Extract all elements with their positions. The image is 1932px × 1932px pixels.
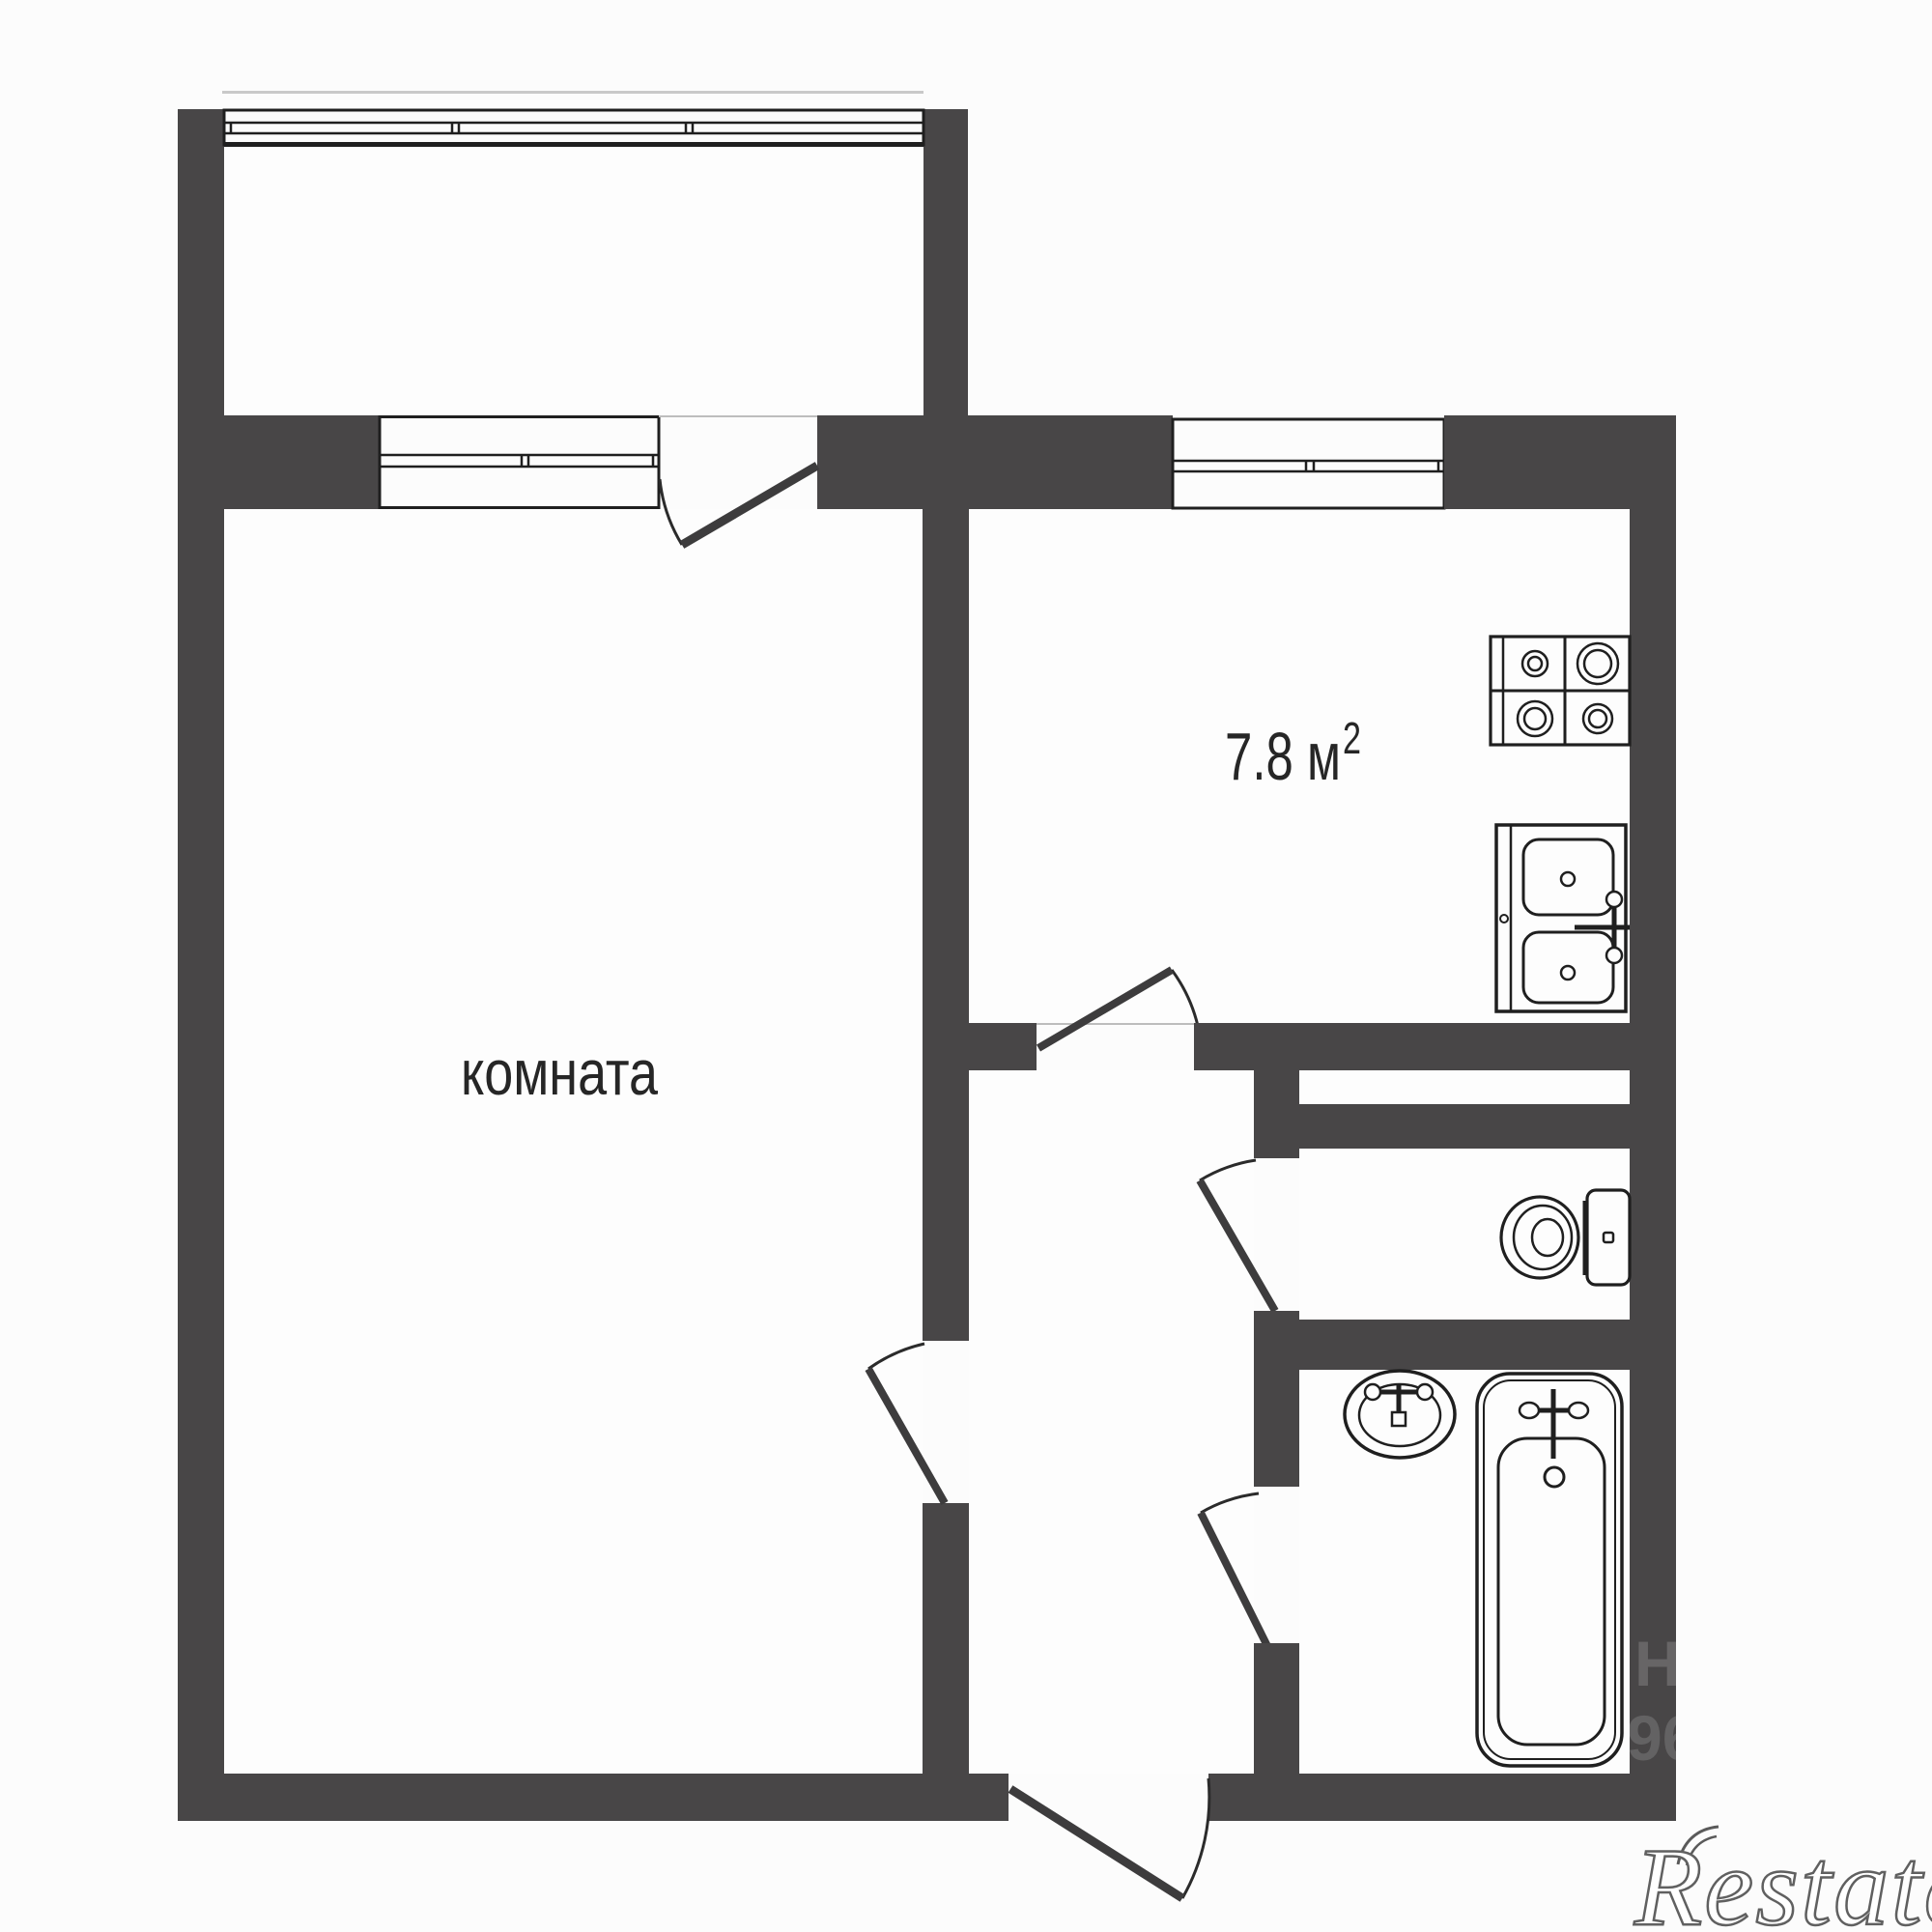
svg-text:комната: комната [461,1037,658,1108]
svg-text:Н: Н [1634,1628,1681,1699]
svg-text:Restate: Restate [1634,1826,1932,1932]
svg-text:96: 96 [1627,1702,1697,1774]
svg-text:7.8 м: 7.8 м [1225,719,1341,794]
svg-text:2: 2 [1343,713,1361,763]
